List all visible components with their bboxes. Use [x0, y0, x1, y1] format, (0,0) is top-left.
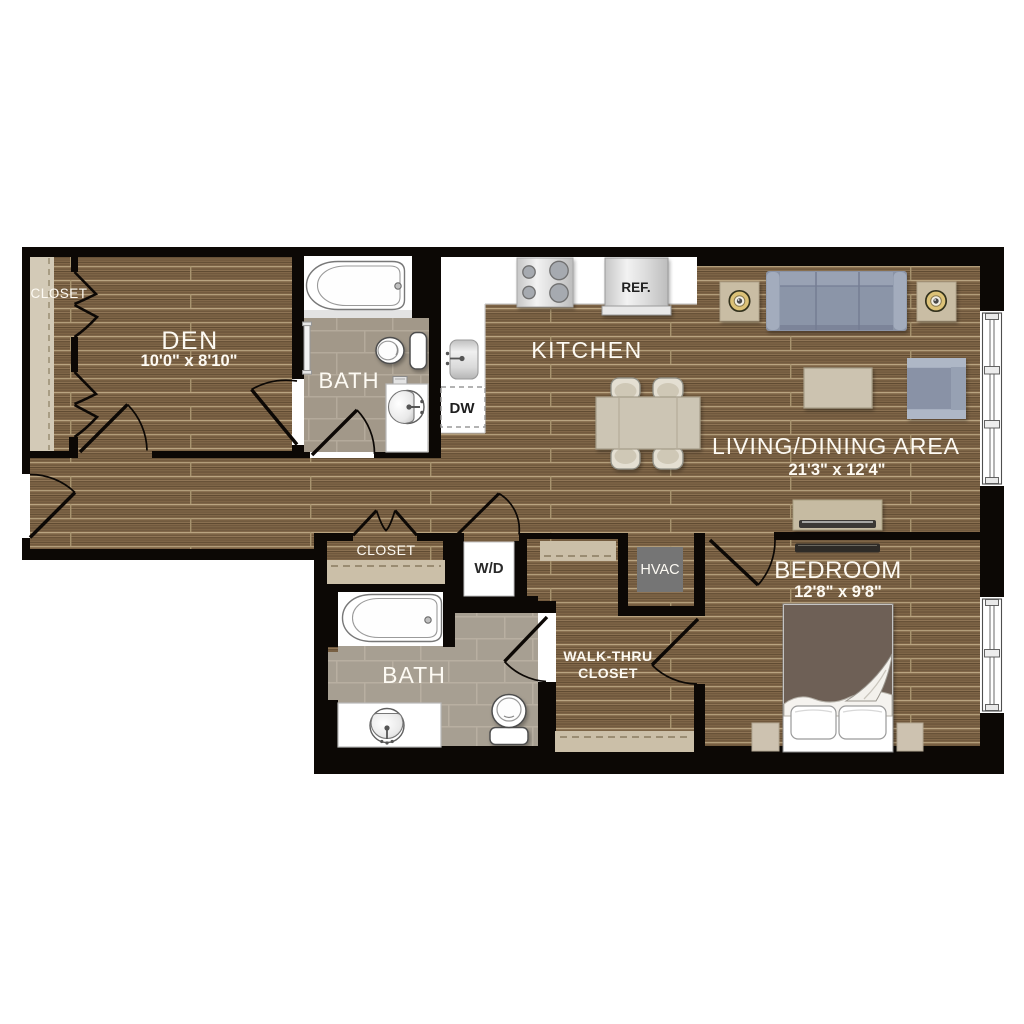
svg-text:REF.: REF. — [621, 280, 650, 295]
svg-text:WALK-THRU: WALK-THRU — [563, 648, 652, 664]
svg-text:LIVING/DINING AREA: LIVING/DINING AREA — [712, 433, 960, 459]
svg-text:HVAC: HVAC — [640, 562, 679, 578]
svg-text:DW: DW — [450, 400, 476, 417]
svg-text:BEDROOM: BEDROOM — [774, 557, 902, 584]
svg-text:CLOSET: CLOSET — [30, 286, 87, 301]
svg-text:10'0" x 8'10": 10'0" x 8'10" — [141, 352, 238, 370]
svg-text:BATH: BATH — [382, 662, 446, 688]
svg-text:DEN: DEN — [161, 327, 218, 355]
svg-text:BATH: BATH — [318, 368, 379, 393]
svg-text:21'3" x 12'4": 21'3" x 12'4" — [789, 461, 886, 479]
svg-text:12'8" x 9'8": 12'8" x 9'8" — [794, 583, 882, 601]
svg-text:CLOSET: CLOSET — [356, 542, 415, 558]
svg-text:W/D: W/D — [474, 560, 503, 577]
svg-text:KITCHEN: KITCHEN — [531, 337, 642, 363]
svg-text:CLOSET: CLOSET — [578, 665, 638, 681]
